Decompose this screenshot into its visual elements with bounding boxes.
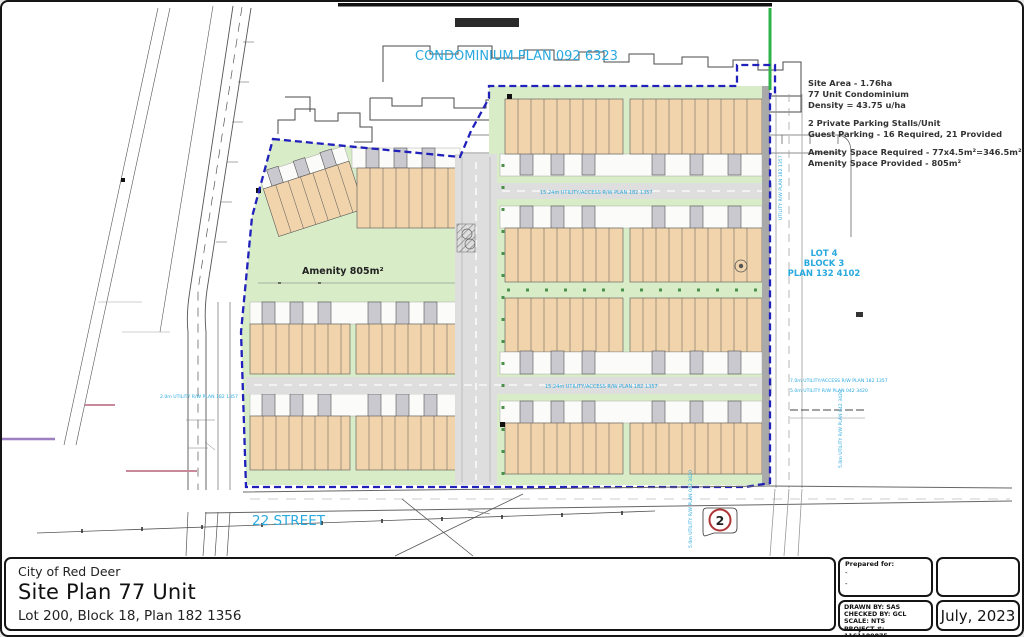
drawing-sheet: 2 CONDOMINIUM PLAN 092 6323 22 STREET Am…: [0, 0, 1024, 637]
drawing-title: Site Plan 77 Unit: [18, 580, 822, 604]
reference-marks: [2, 405, 197, 471]
utility-row-label-2: 5.0m UTILITY R/W PLAN 042 3420: [790, 388, 868, 394]
prepared-for-label: Prepared for:: [845, 560, 926, 568]
drawing-subtitle: Lot 200, Block 18, Plan 182 1356: [18, 608, 822, 624]
amenity-label: Amenity 805m²: [302, 266, 384, 277]
prepared-for-box: Prepared for: - -: [838, 557, 933, 597]
svg-text:Density = 43.75 u/ha: Density = 43.75 u/ha: [808, 100, 906, 110]
west-roads: [64, 6, 254, 556]
drawing-date: July, 2023: [941, 607, 1016, 625]
svg-text:LOT 4: LOT 4: [810, 249, 837, 259]
svg-text:77 Unit Condominium: 77 Unit Condominium: [808, 89, 909, 99]
prepared-line-2: -: [845, 579, 926, 590]
lot4-label: LOT 4 BLOCK 3 PLAN 132 4102: [788, 249, 861, 279]
road2-label: 15.24m UTILITY/ACCESS R/W PLAN 182 1357: [545, 384, 658, 390]
drawing-credits-box: DRAWN BY: SAS CHECKED BY: GCL SCALE: NTS…: [838, 600, 933, 631]
site-plan-drawing: 2 CONDOMINIUM PLAN 092 6323 22 STREET Am…: [2, 2, 1022, 557]
scale: SCALE: NTS: [844, 618, 927, 625]
street-label: 22 STREET: [252, 513, 326, 529]
checked-by: CHECKED BY: GCL: [844, 611, 927, 618]
site-notes: Site Area - 1.76ha 77 Unit Condominium D…: [808, 78, 1022, 168]
road1-label: 15.24m UTILITY/ACCESS R/W PLAN 182 1357: [540, 190, 653, 196]
utility-row-label-1: 7.0m UTILITY/ACCESS R/W PLAN 182 1357: [790, 378, 888, 384]
street-22: [37, 486, 1012, 556]
title-block-empty-box: [936, 557, 1020, 597]
utility-vert-label-1: UTILITY R/W PLAN 182 1357: [778, 155, 784, 220]
svg-text:2 Private Parking Stalls/Unit: 2 Private Parking Stalls/Unit: [808, 118, 940, 128]
plan-reference-marker: 2: [703, 508, 737, 536]
title-block-main: City of Red Deer Site Plan 77 Unit Lot 2…: [4, 557, 836, 631]
project-number: PROJECT #: 1161109875: [844, 626, 927, 637]
svg-text:BLOCK 3: BLOCK 3: [804, 259, 845, 269]
utility-vert-label-2: 5.0m UTILITY R/W PLAN 042 3420: [838, 390, 844, 468]
svg-text:Guest Parking - 16 Required, 2: Guest Parking - 16 Required, 21 Provided: [808, 129, 1002, 139]
svg-text:Site Area - 1.76ha: Site Area - 1.76ha: [808, 78, 892, 88]
prepared-line-1: -: [845, 568, 926, 579]
condo-plan-label: CONDOMINIUM PLAN 092 6323: [415, 49, 618, 64]
utility-row-label-left: 2.0m UTILITY R/W PLAN 182 1357: [160, 394, 238, 400]
sheet-top-edge-marks: [338, 3, 772, 27]
municipality: City of Red Deer: [18, 564, 822, 579]
marker-number: 2: [716, 513, 725, 528]
utility-vert-label-3: 5.0m UTILITY R/W PLAN 042 3420: [688, 470, 694, 548]
drawn-by: DRAWN BY: SAS: [844, 604, 927, 611]
svg-text:Amenity Space Required - 77x4.: Amenity Space Required - 77x4.5m²=346.5m…: [808, 147, 1022, 157]
date-box: July, 2023: [936, 600, 1020, 631]
svg-text:PLAN 132 4102: PLAN 132 4102: [788, 269, 861, 279]
svg-text:Amenity Space Provided - 805m²: Amenity Space Provided - 805m²: [808, 158, 961, 168]
